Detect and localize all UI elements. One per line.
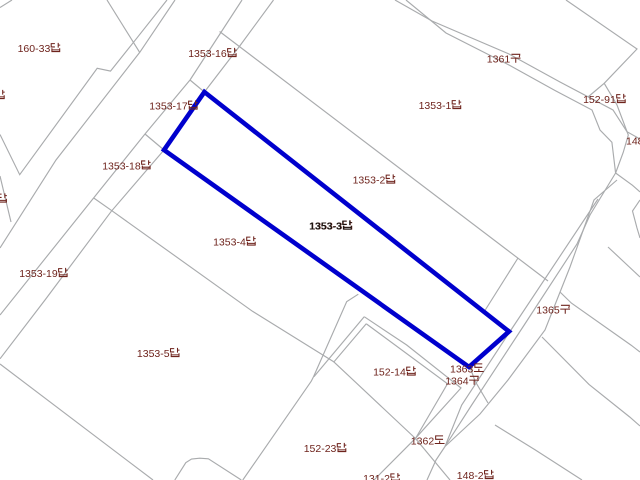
svg-text:1353-19: 1353-19: [19, 268, 58, 280]
svg-text:1353-1: 1353-1: [419, 100, 452, 112]
svg-text:152-23: 152-23: [304, 443, 337, 455]
svg-text:1363: 1363: [450, 364, 474, 376]
svg-text:1361: 1361: [487, 54, 511, 66]
svg-text:1353-16: 1353-16: [188, 48, 227, 60]
svg-text:1364: 1364: [445, 376, 469, 388]
svg-text:160-33: 160-33: [18, 43, 51, 55]
svg-text:1362: 1362: [411, 436, 435, 448]
svg-text:1353-2: 1353-2: [353, 175, 386, 187]
svg-text:1353-17: 1353-17: [149, 101, 188, 113]
svg-text:1353-3: 1353-3: [309, 221, 342, 233]
svg-text:1353-5: 1353-5: [137, 348, 170, 360]
svg-text:148-2: 148-2: [626, 136, 640, 148]
svg-text:131-2: 131-2: [363, 473, 390, 480]
svg-text:1353-18: 1353-18: [102, 160, 141, 172]
svg-text:1353-4: 1353-4: [213, 237, 246, 249]
svg-text:148-2: 148-2: [457, 470, 484, 480]
svg-text:152-14: 152-14: [373, 367, 406, 379]
svg-text:1365: 1365: [536, 305, 560, 317]
svg-text:152-91: 152-91: [583, 94, 616, 106]
